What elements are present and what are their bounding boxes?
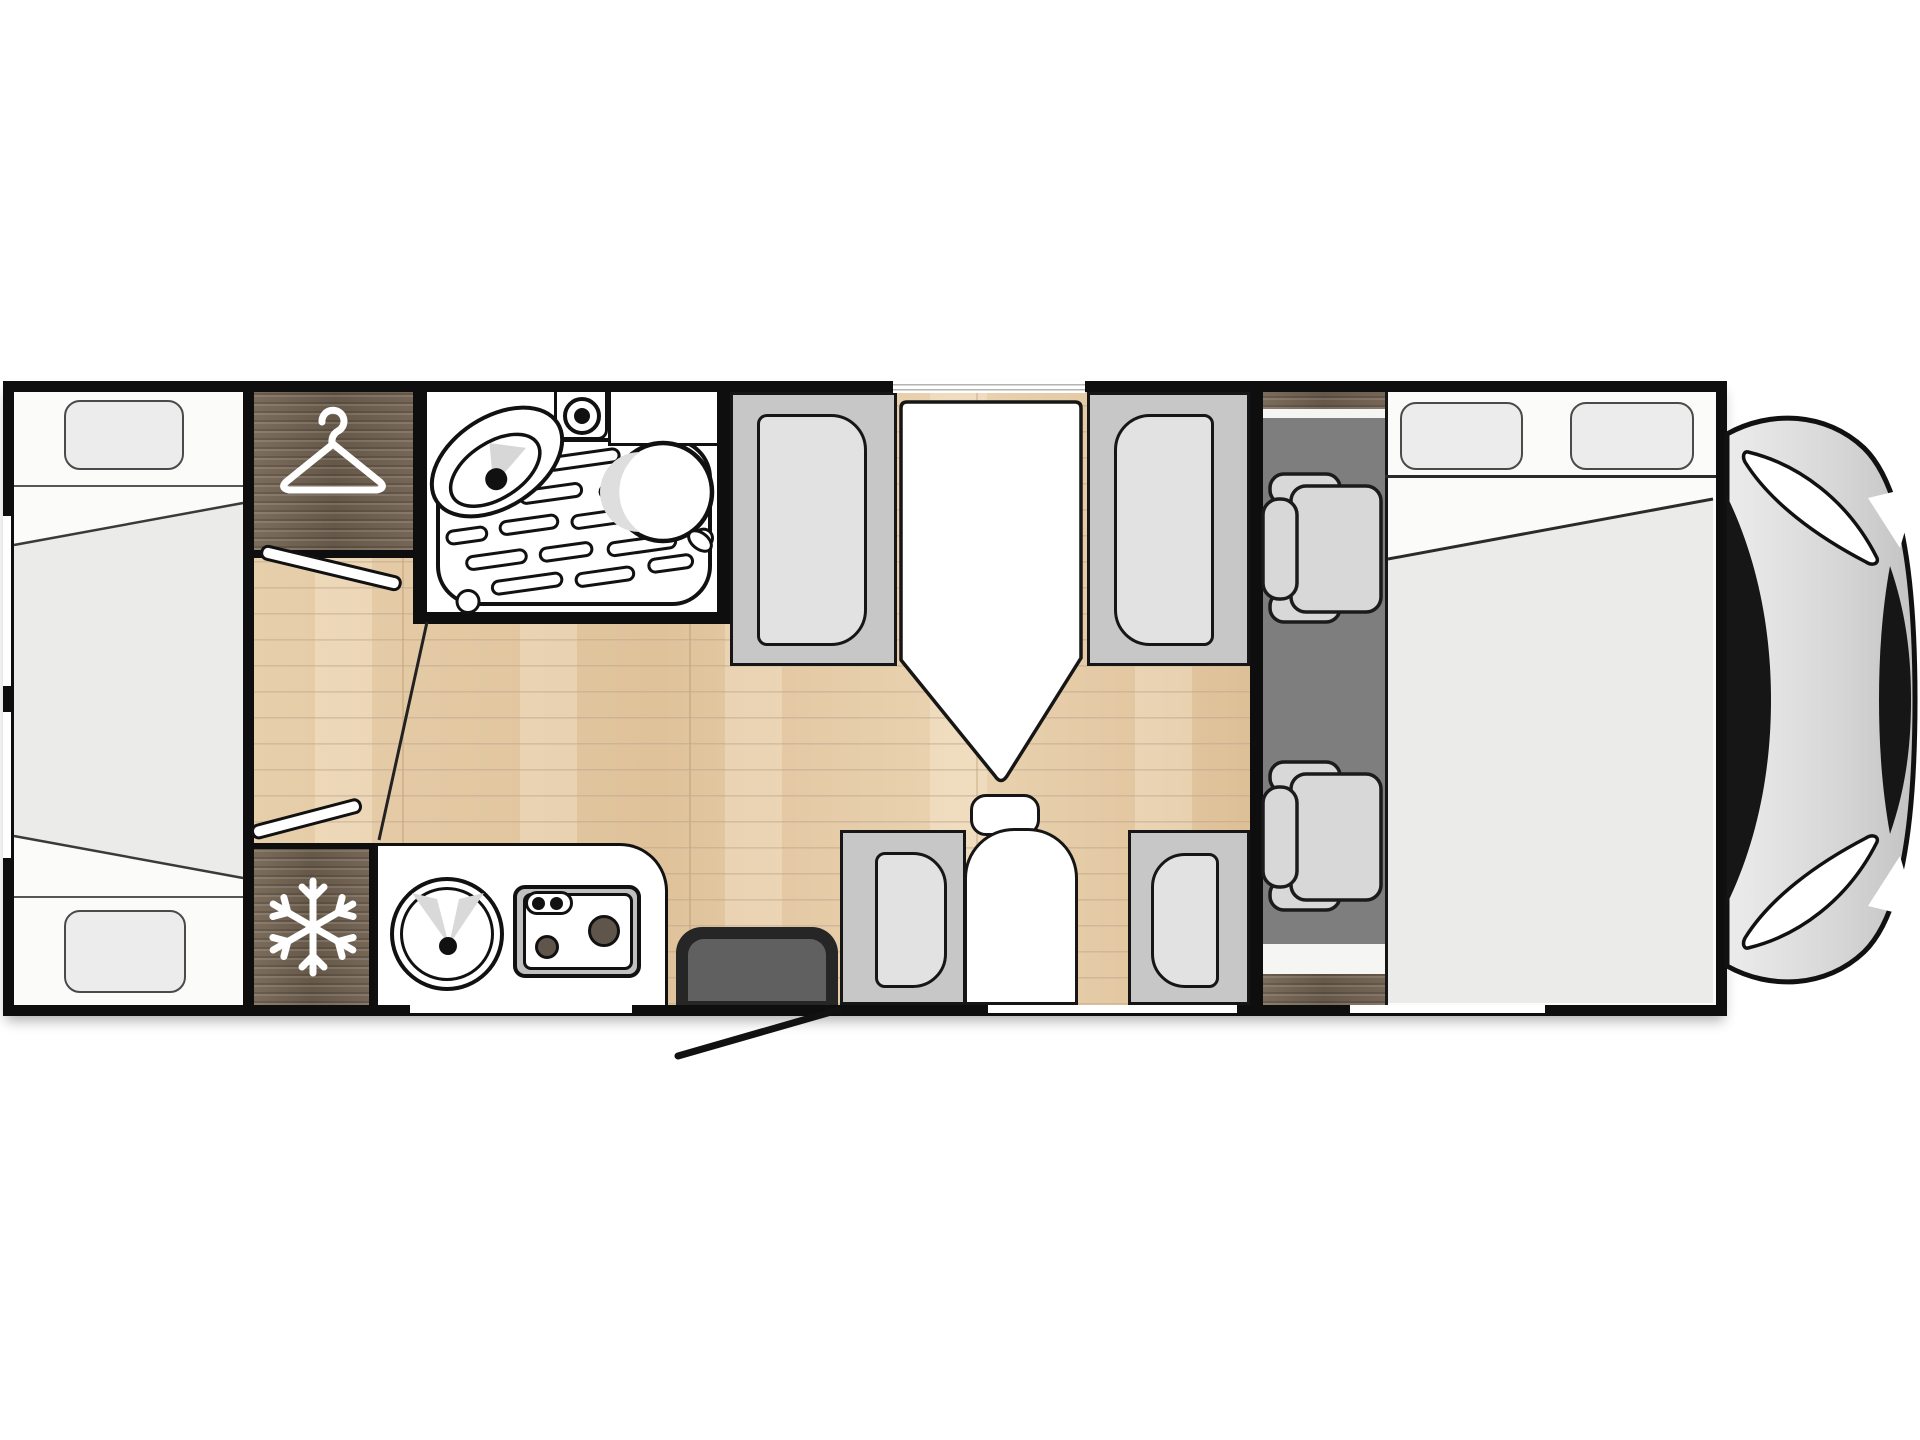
- rear-bed-mattress: [14, 503, 243, 878]
- snowflake-icon: [268, 881, 359, 973]
- kitchen-sink-detail: [412, 893, 484, 955]
- cab-seat-passenger: [1263, 474, 1381, 622]
- toilet: [600, 443, 715, 555]
- vehicle-nose: [1727, 418, 1918, 982]
- front-bed-mattress: [1388, 499, 1713, 1003]
- partition-swing-line: [379, 622, 427, 840]
- dinette-table: [901, 402, 1081, 781]
- cab-seat-driver: [1263, 762, 1381, 910]
- hanger-icon: [284, 410, 383, 490]
- door-panel-bar-lower: [251, 799, 362, 840]
- fixtures-overlay: [0, 0, 1920, 1440]
- door-panel-bar-upper: [260, 545, 401, 591]
- floorplan-stage: [0, 0, 1920, 1440]
- entry-door-swing-line: [678, 1010, 838, 1056]
- bathroom-faucet: [565, 399, 599, 433]
